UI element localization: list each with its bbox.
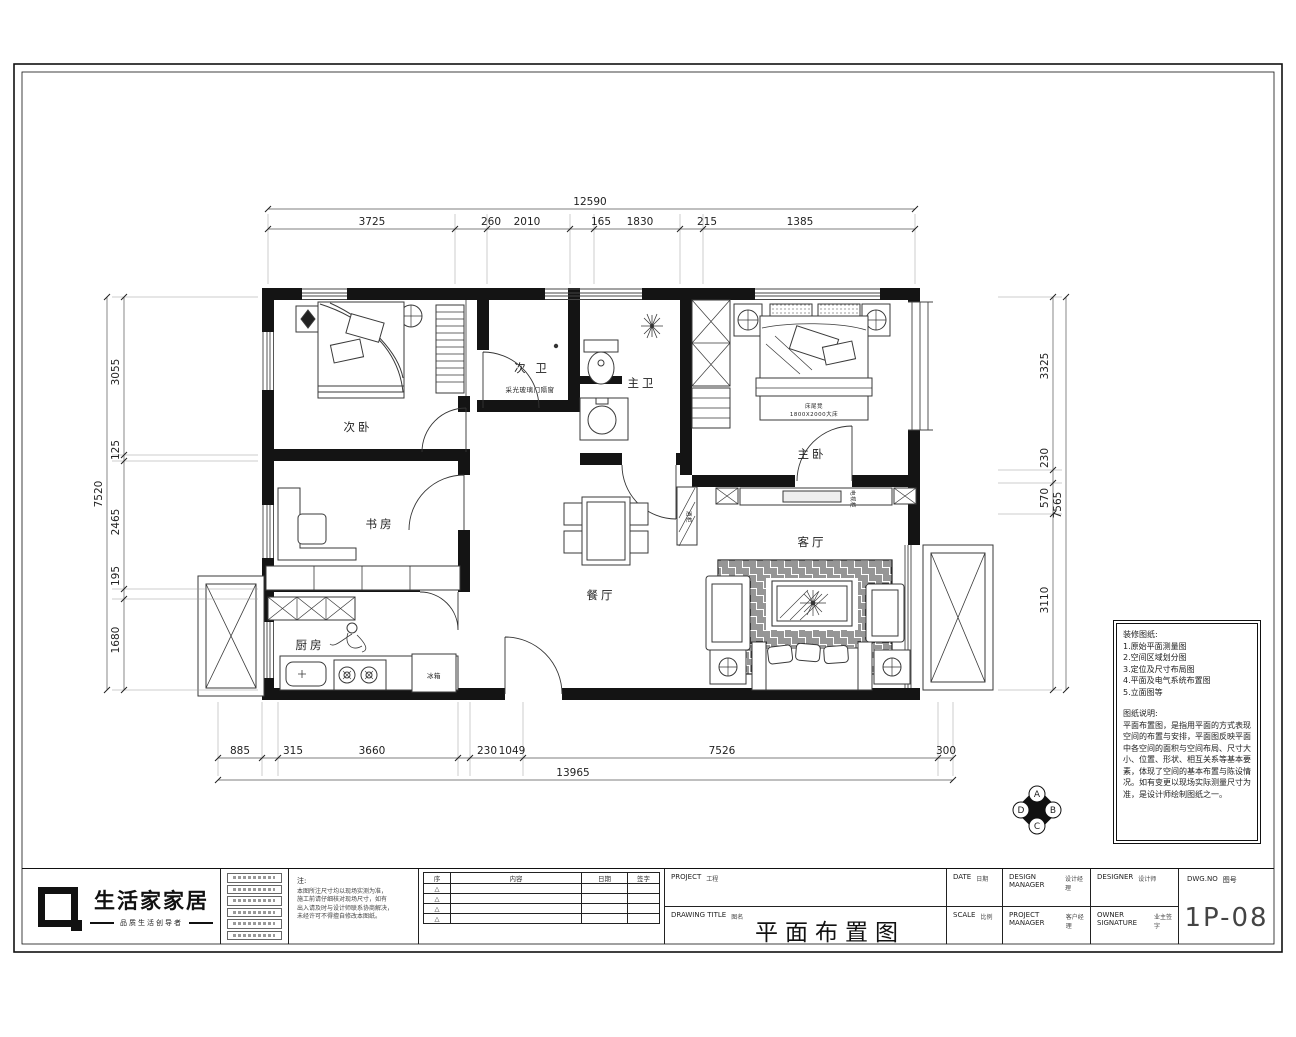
- bed-note-2: 1800X2000大床: [790, 410, 838, 418]
- svg-text:215: 215: [697, 216, 717, 228]
- svg-text:2010: 2010: [514, 216, 541, 228]
- svg-text:230: 230: [477, 745, 497, 757]
- svg-text:570: 570: [1039, 488, 1051, 508]
- svg-text:3325: 3325: [1039, 353, 1051, 380]
- door-bedroom2: [422, 408, 466, 452]
- svg-text:3660: 3660: [359, 745, 386, 757]
- svg-text:1680: 1680: [110, 627, 122, 654]
- note-line: 未经许可不得擅自修改本图纸。: [297, 913, 410, 922]
- svg-text:7520: 7520: [93, 481, 105, 508]
- drawing-title-label: DRAWING TITLE: [671, 911, 726, 919]
- revision-table-cell: 序 内容 日期 签字 △ △ △ △: [418, 869, 664, 944]
- svg-text:1049: 1049: [499, 745, 526, 757]
- notes-item: 4.平面及电气系统布置图: [1123, 675, 1251, 687]
- tv-cabinet-label: 电视柜: [849, 490, 857, 508]
- room-label-living: 客厅: [798, 535, 827, 549]
- svg-text:3725: 3725: [359, 216, 386, 228]
- notes-item: 1.原始平面测量图: [1123, 641, 1251, 653]
- note-line: 本图所注尺寸均以现场实测为准，: [297, 888, 410, 897]
- info-box: [227, 919, 282, 929]
- bedroom2-furniture: [296, 302, 464, 398]
- info-box: [227, 885, 282, 895]
- notes-item: 3.定位及尺寸布局图: [1123, 664, 1251, 676]
- info-box: [227, 931, 282, 941]
- note-line: 出入请及时与设计师联系协商解决，: [297, 905, 410, 914]
- dash-icon: [90, 922, 114, 924]
- dwgno-label: DWG.NO: [1187, 875, 1218, 885]
- room-label-study: 书房: [366, 517, 395, 531]
- revision-triangle-icon: △: [424, 893, 450, 903]
- rev-header: 日期: [581, 873, 627, 883]
- revision-table: 序 内容 日期 签字 △ △ △ △: [423, 872, 660, 924]
- info-box: [227, 908, 282, 918]
- furniture: [198, 300, 993, 696]
- date-scale-cell: DATE 日期 SCALE 比例: [946, 869, 1002, 944]
- orientation-symbol: A B C D: [1013, 786, 1061, 834]
- owner-signature-cn: 业主签字: [1154, 912, 1172, 930]
- company-tagline: 品质生活创导者: [120, 918, 183, 928]
- fridge-label: 冰箱: [427, 671, 441, 680]
- svg-text:260: 260: [481, 216, 501, 228]
- door-entry: [505, 637, 562, 694]
- date-label: DATE: [953, 873, 971, 881]
- svg-text:1830: 1830: [627, 216, 654, 228]
- bed-note-1: 床尾凳: [805, 402, 823, 410]
- room-label-bath2: 次 卫: [514, 361, 550, 375]
- compass-c: C: [1034, 822, 1040, 832]
- drawing-title: 平面布置图: [755, 913, 905, 944]
- info-box: [227, 873, 282, 883]
- drawing-title-cn: 图名: [731, 912, 743, 921]
- disclaimer-note: 注: 本图所注尺寸均以现场实测为准， 施工前请仔细核对现场尺寸，如有 出入请及时…: [288, 869, 418, 944]
- notes-desc-title: 图纸说明:: [1123, 708, 1251, 720]
- designer-cn: 设计师: [1138, 874, 1156, 883]
- rev-header: 内容: [450, 873, 581, 883]
- svg-text:300: 300: [936, 745, 956, 757]
- svg-text:125: 125: [110, 440, 122, 460]
- room-label-bath1: 主卫: [628, 376, 657, 390]
- project-cell: PROJECT 工程 DRAWING TITLE 图名 平面布置图: [664, 869, 946, 944]
- designer-label: DESIGNER: [1097, 873, 1133, 881]
- date-cn: 日期: [976, 874, 988, 883]
- svg-text:7565: 7565: [1052, 492, 1064, 519]
- owner-signature-label: OWNER SIGNATURE: [1097, 911, 1149, 927]
- shower-head-icon: [641, 314, 663, 338]
- notes-box: 装修图纸: 1.原始平面测量图 2.空间区域划分图 3.定位及尺寸布局图 4.平…: [1113, 620, 1261, 844]
- project-manager-cn: 客户经理: [1066, 912, 1084, 930]
- compass-b: B: [1050, 806, 1056, 816]
- logo: 生活家家居 品质生活创导者: [22, 869, 220, 944]
- drawing-sheet: 次卧 书房 厨房 次 卫 主卫 主卧 餐厅 客厅 采光玻璃门隔窗 床尾凳 180…: [0, 0, 1296, 1037]
- design-manager-label: DESIGN MANAGER: [1009, 873, 1060, 889]
- revision-triangle-icon: △: [424, 913, 450, 923]
- managers-cell: DESIGN MANAGER 设计经理 PROJECT MANAGER 客户经理: [1002, 869, 1090, 944]
- svg-text:1385: 1385: [787, 216, 814, 228]
- room-label-dining: 餐厅: [587, 588, 616, 602]
- wine-cabinet-label: 酒柜: [685, 511, 693, 523]
- drawing-number-cell: DWG.NO 图号 1P-08: [1178, 869, 1274, 944]
- room-label-master: 主卧: [798, 447, 827, 461]
- notes-desc: 平面布置图，是指用平面的方式表现空间的布置与安排，平面图反映平面中各空间的面积与…: [1123, 720, 1251, 801]
- svg-text:7526: 7526: [709, 745, 736, 757]
- title-block: 生活家家居 品质生活创导者 注: 本图所注尺寸均以现场实测为准， 施工前请仔细核…: [22, 868, 1274, 944]
- svg-text:3055: 3055: [110, 359, 122, 386]
- notes-title: 装修图纸:: [1123, 629, 1251, 641]
- notes-item: 5.立面图等: [1123, 687, 1251, 699]
- knob-dot: [554, 344, 558, 348]
- dwgno-cn: 图号: [1223, 875, 1237, 885]
- study-furniture: [266, 488, 460, 590]
- door-kitchen: [420, 592, 458, 630]
- note-line: 施工前请仔细核对现场尺寸，如有: [297, 896, 410, 905]
- rev-header: 签字: [627, 873, 659, 883]
- svg-text:3110: 3110: [1039, 587, 1051, 614]
- drawing-number: 1P-08: [1179, 891, 1274, 944]
- revision-triangle-icon: △: [424, 883, 450, 893]
- info-box: [227, 896, 282, 906]
- svg-text:230: 230: [1039, 448, 1051, 468]
- entry-closet: [692, 300, 730, 428]
- company-logo-icon: [38, 887, 78, 927]
- note-label: 注:: [297, 877, 410, 886]
- dining-furniture: [564, 487, 697, 565]
- compass-d: D: [1018, 806, 1025, 816]
- svg-text:885: 885: [230, 745, 250, 757]
- room-label-bedroom2: 次卧: [344, 420, 373, 434]
- compass-a: A: [1034, 790, 1041, 800]
- svg-text:195: 195: [110, 566, 122, 586]
- living-furniture: [706, 488, 916, 690]
- svg-text:12590: 12590: [573, 196, 606, 208]
- revision-triangle-icon: △: [424, 903, 450, 913]
- left-balcony: [198, 576, 264, 696]
- design-manager-cn: 设计经理: [1065, 874, 1084, 892]
- right-bay: [923, 545, 993, 690]
- project-cn: 工程: [706, 874, 718, 883]
- notes-item: 2.空间区域划分图: [1123, 652, 1251, 664]
- scale-cn: 比例: [980, 912, 992, 921]
- room-label-kitchen: 厨房: [296, 638, 325, 652]
- designer-owner-cell: DESIGNER 设计师 OWNER SIGNATURE 业主签字: [1090, 869, 1178, 944]
- project-manager-label: PROJECT MANAGER: [1009, 911, 1061, 927]
- svg-text:13965: 13965: [556, 767, 589, 779]
- project-label: PROJECT: [671, 873, 701, 881]
- company-name: 生活家家居: [94, 885, 209, 915]
- scale-label: SCALE: [953, 911, 975, 919]
- svg-text:165: 165: [591, 216, 611, 228]
- rev-header: 序: [424, 873, 450, 883]
- door-study: [409, 475, 464, 530]
- partition-note: 采光玻璃门隔窗: [506, 385, 555, 394]
- company-info-boxes: [220, 869, 288, 944]
- svg-text:315: 315: [283, 745, 303, 757]
- svg-text:2465: 2465: [110, 509, 122, 536]
- dash-icon: [189, 922, 213, 924]
- master-furniture: [734, 304, 890, 420]
